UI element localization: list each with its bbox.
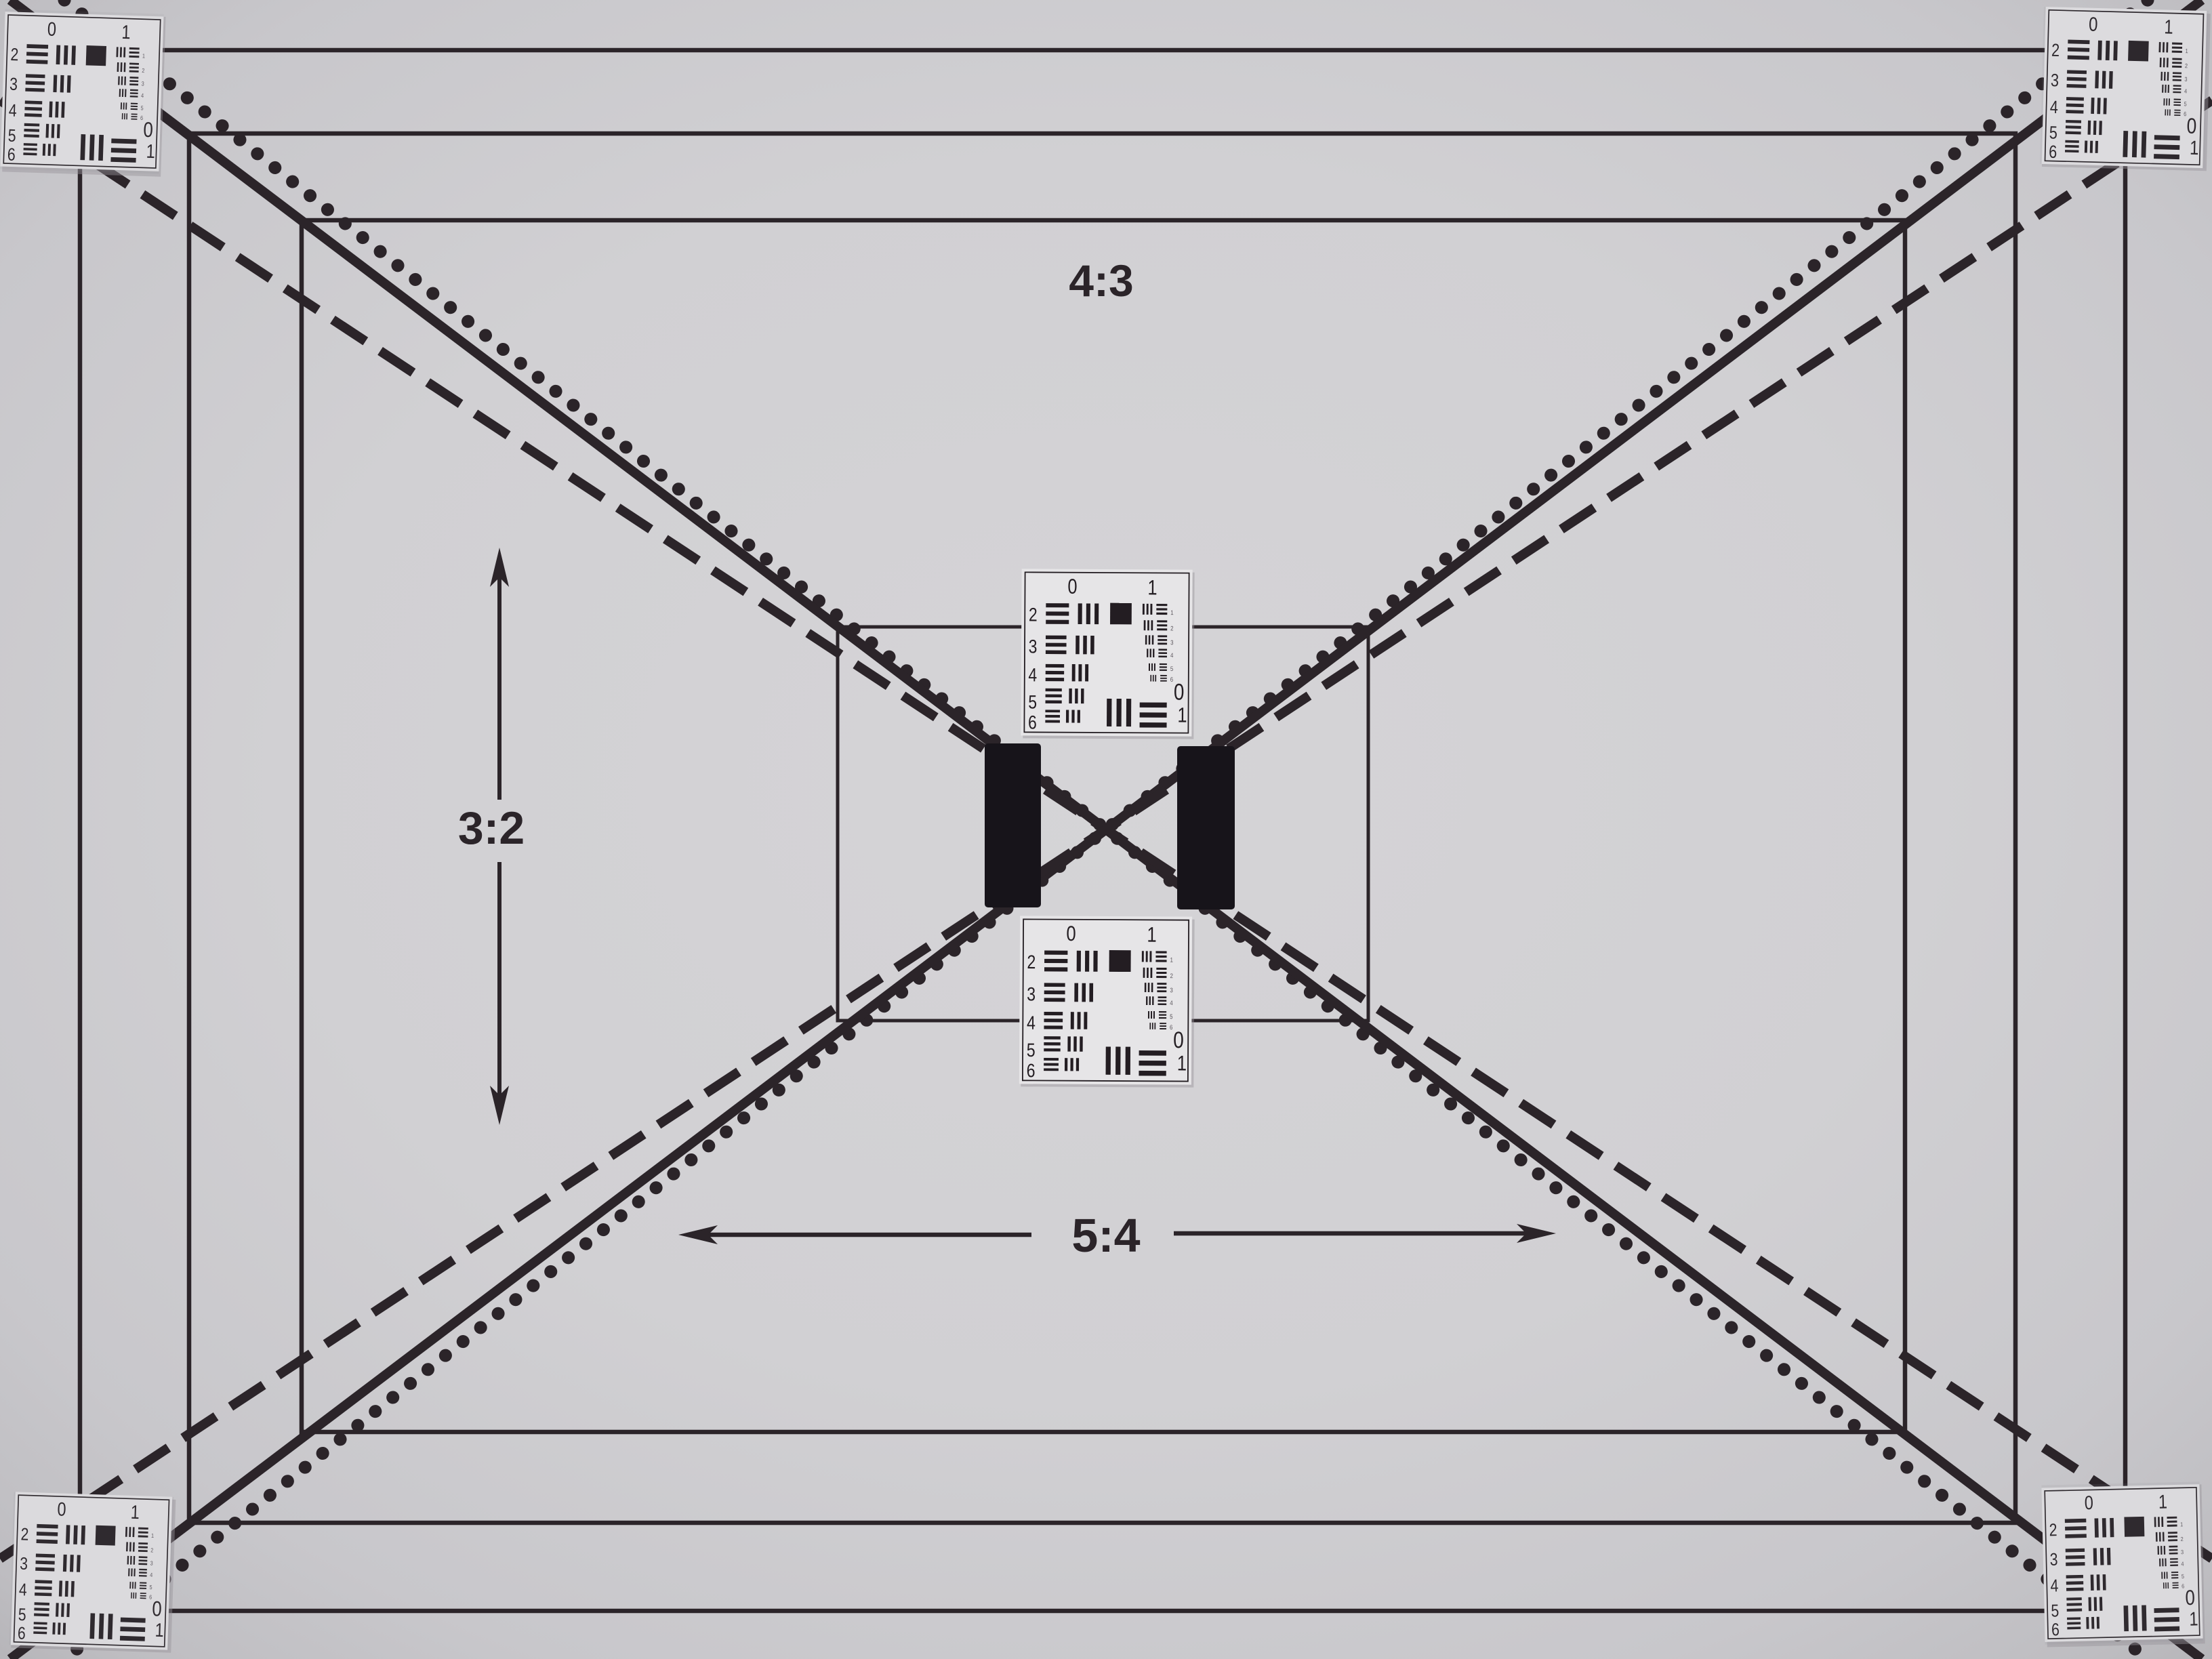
svg-text:5:4: 5:4 — [1071, 1209, 1140, 1262]
svg-text:3:2: 3:2 — [458, 802, 525, 854]
svg-text:4:3: 4:3 — [1069, 255, 1133, 306]
